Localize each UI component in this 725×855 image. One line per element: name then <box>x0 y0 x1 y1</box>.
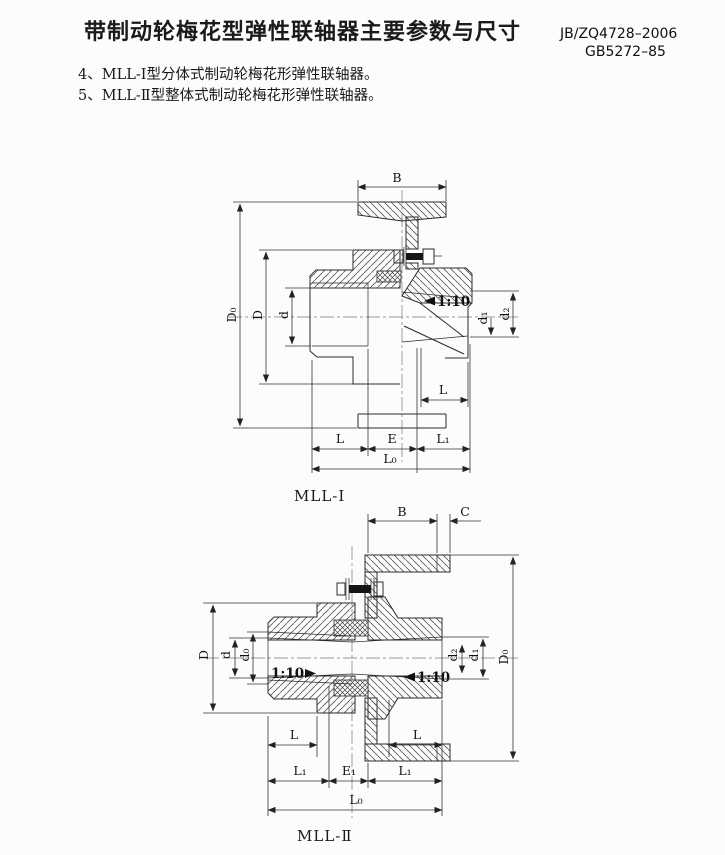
dim-label-l1: L₁ <box>436 431 449 446</box>
taper-label-right: 1:10 <box>417 670 450 686</box>
document-page: 带制动轮梅花型弹性联轴器主要参数与尺寸 JB/ZQ4728–2006 GB527… <box>0 0 725 855</box>
dim-label-d0-outer: D₀ <box>496 649 511 664</box>
dim-label-d2: d₂ <box>445 648 460 661</box>
taper-label: 1:10 <box>437 294 470 310</box>
dim-label-d-bore: d <box>218 651 233 659</box>
brake-wheel-web-foot <box>406 263 418 269</box>
dim-label-d1: d₁ <box>475 311 490 324</box>
dim-label-d0-small: d₀ <box>237 648 252 661</box>
dim-label-d-bore: d <box>276 311 291 319</box>
dim-label-l1-left: L₁ <box>293 763 306 778</box>
brake-wheel-web <box>406 217 418 249</box>
dim-label-l-shaft: L <box>439 382 447 397</box>
dim-label-l0: L₀ <box>383 451 396 466</box>
right-hub-upper <box>368 597 442 640</box>
left-hub-lower-outline <box>310 288 400 384</box>
dim-label-l: L <box>336 431 344 446</box>
dim-d2: d₂ <box>445 645 462 673</box>
elastic-element-upper <box>334 620 368 636</box>
dim-label-l1-right: L₁ <box>398 763 411 778</box>
left-bore-lines <box>312 283 368 346</box>
dim-c: C <box>450 504 481 553</box>
dim-label-c: C <box>460 504 470 519</box>
taper-label-left: 1:10 <box>271 666 304 682</box>
brake-wheel-rim <box>358 202 446 221</box>
caption-mll-2: MLL-Ⅱ <box>297 827 353 845</box>
elastic-element-lower <box>334 680 368 696</box>
dim-label-d-flange: D <box>250 310 265 320</box>
dim-label-l-left: L <box>290 727 298 742</box>
right-hub-lower-outline <box>404 303 472 358</box>
dim-label-b: B <box>397 504 406 519</box>
dim-label-d-flange: D <box>196 650 211 660</box>
dim-label-d1: d₁ <box>466 648 481 661</box>
dim-label-d2: d₂ <box>497 307 512 320</box>
technical-drawings: B D₀ D d 1:10 <box>0 0 725 855</box>
dim-label-l0: L₀ <box>349 792 362 807</box>
figure-mll-2: B C D d d₀ <box>196 504 520 818</box>
caption-mll-1: MLL-Ⅰ <box>294 487 345 505</box>
elastic-element <box>377 271 401 282</box>
dim-b: B <box>368 504 437 553</box>
dim-label-e1: E₁ <box>342 763 356 778</box>
dim-label-b: B <box>392 170 401 185</box>
dim-label-e: E <box>387 431 396 446</box>
dim-label-d0-outer: D₀ <box>224 307 239 322</box>
dim-d2: d₂ <box>497 293 513 335</box>
figure-mll-1: B D₀ D d 1:10 <box>224 170 520 473</box>
dim-bottom-rows: L E L₁ L₀ <box>312 344 470 473</box>
dim-label-l-right: L <box>413 727 421 742</box>
dim-l-shaft: L <box>421 348 468 407</box>
